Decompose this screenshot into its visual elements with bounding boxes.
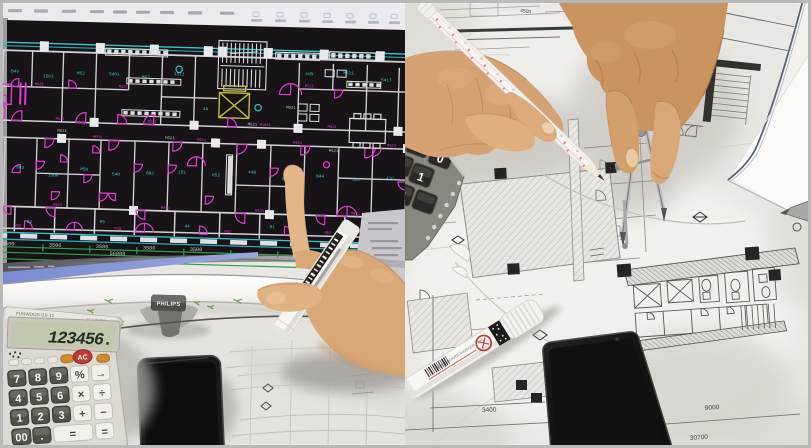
svg-text:3400: 3400 (482, 406, 497, 414)
svg-text:M52: M52 (77, 71, 85, 76)
svg-text:00: 00 (15, 432, 28, 445)
svg-text:+: + (79, 408, 86, 420)
svg-text:M521: M521 (255, 210, 265, 214)
svg-text:3500: 3500 (2, 241, 15, 247)
svg-text:4VB: 4VB (305, 72, 313, 77)
svg-text:M521: M521 (286, 107, 296, 111)
svg-text:M52: M52 (14, 225, 22, 229)
svg-text:3500: 3500 (143, 245, 156, 251)
svg-text:AC: AC (77, 354, 88, 362)
svg-text:M721: M721 (305, 85, 315, 89)
svg-text:M821: M821 (161, 207, 171, 211)
svg-text:%: % (75, 369, 86, 382)
svg-text:M521: M521 (293, 142, 303, 146)
svg-text:M1021: M1021 (260, 124, 272, 128)
svg-text:B43: B43 (16, 166, 24, 171)
svg-text:=: = (101, 426, 108, 438)
svg-text:M521: M521 (197, 139, 207, 143)
svg-text:3: 3 (58, 410, 65, 422)
svg-text:5B1: 5B1 (352, 178, 360, 183)
svg-text:M521: M521 (56, 118, 66, 122)
svg-text:M521: M521 (387, 145, 397, 149)
svg-text:1504: 1504 (48, 173, 59, 178)
svg-text:9: 9 (55, 371, 62, 383)
svg-text:M521: M521 (165, 137, 175, 141)
svg-text:×: × (78, 389, 85, 401)
svg-text:M521: M521 (329, 150, 339, 154)
svg-text:6: 6 (57, 390, 64, 402)
svg-text:PHILIPS: PHILIPS (156, 301, 180, 308)
svg-text:5417: 5417 (381, 78, 392, 83)
svg-text:B49: B49 (11, 69, 19, 74)
svg-text:B03: B03 (142, 75, 150, 80)
svg-text:3500: 3500 (49, 243, 62, 249)
svg-text:41C: 41C (386, 177, 394, 182)
svg-text:B1: B1 (269, 225, 275, 230)
svg-text:M521: M521 (343, 71, 354, 76)
svg-text:M521: M521 (148, 120, 158, 124)
svg-text:M821: M821 (93, 136, 103, 140)
svg-text:9000: 9000 (705, 404, 720, 412)
svg-text:5: 5 (36, 392, 43, 404)
svg-text:1: 1 (16, 413, 23, 425)
svg-text:=: = (69, 428, 76, 440)
svg-text:M921: M921 (35, 83, 45, 87)
svg-text:3500: 3500 (190, 247, 203, 253)
svg-text:44B: 44B (248, 170, 256, 175)
svg-text:B4: B4 (27, 220, 33, 225)
svg-text:30700: 30700 (690, 434, 709, 442)
svg-text:1511: 1511 (174, 72, 185, 77)
svg-text:3500: 3500 (96, 244, 109, 250)
svg-text:56008: 56008 (110, 251, 126, 257)
svg-text:M521: M521 (327, 126, 337, 130)
svg-text:4A: 4A (203, 107, 209, 112)
svg-text:151: 151 (178, 170, 186, 175)
svg-text:−: − (100, 407, 107, 419)
svg-text:2: 2 (37, 411, 44, 423)
svg-text:M521: M521 (119, 86, 129, 90)
svg-text:M5: M5 (100, 220, 106, 225)
svg-text:M521: M521 (53, 204, 63, 208)
svg-text:8: 8 (34, 372, 41, 384)
svg-text:M52: M52 (324, 232, 332, 236)
svg-text:44: 44 (184, 225, 190, 230)
svg-text:1503: 1503 (43, 74, 54, 79)
svg-text:7: 7 (13, 374, 20, 386)
svg-text:M52: M52 (212, 173, 220, 178)
svg-text:M521: M521 (351, 212, 361, 216)
svg-text:5401: 5401 (109, 72, 120, 77)
svg-text:B44: B44 (316, 174, 324, 179)
svg-text:M521: M521 (248, 123, 258, 127)
svg-text:÷: ÷ (99, 387, 106, 399)
svg-text:M521: M521 (57, 130, 67, 134)
svg-text:123456.: 123456. (48, 329, 113, 350)
svg-text:BB3: BB3 (146, 171, 154, 176)
svg-text:M58: M58 (80, 167, 88, 172)
svg-text:M52: M52 (224, 231, 232, 235)
svg-text:M10: M10 (114, 227, 122, 231)
svg-text:54B: 54B (112, 172, 120, 177)
svg-text:→: → (95, 368, 107, 381)
